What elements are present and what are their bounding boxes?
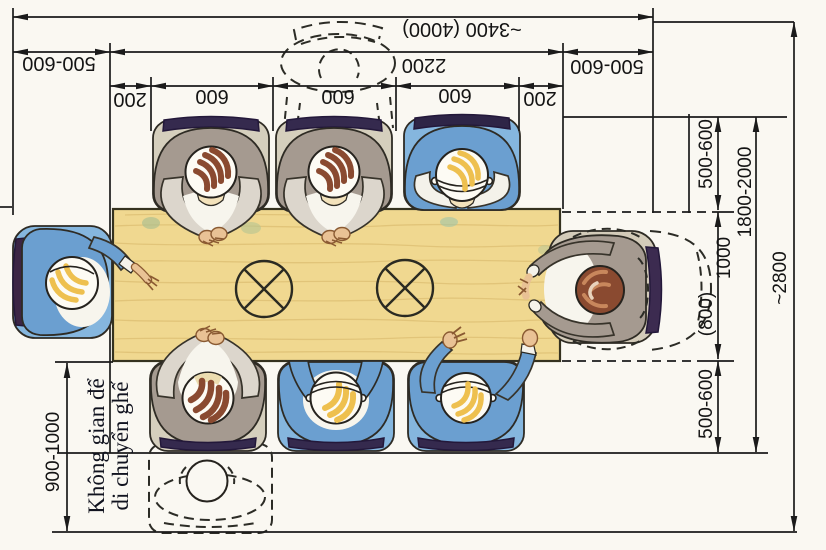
svg-text:2200: 2200 xyxy=(402,54,447,76)
svg-text:1000: 1000 xyxy=(714,237,735,279)
svg-text:500-600: 500-600 xyxy=(570,55,643,77)
svg-text:500-600: 500-600 xyxy=(696,119,717,189)
svg-text:500-600: 500-600 xyxy=(696,369,717,439)
svg-text:600: 600 xyxy=(321,85,354,107)
svg-text:500-600: 500-600 xyxy=(22,52,95,74)
svg-text:200: 200 xyxy=(523,87,556,109)
svg-text:200: 200 xyxy=(113,88,146,110)
svg-text:~2800: ~2800 xyxy=(770,251,791,304)
svg-text:Không gian để: Không gian để xyxy=(84,378,109,514)
svg-text:900-1000: 900-1000 xyxy=(43,412,64,492)
svg-text:~3400 (4000): ~3400 (4000) xyxy=(402,18,522,40)
svg-text:di chuyển ghế: di chuyển ghế xyxy=(108,381,133,511)
svg-text:(800): (800) xyxy=(696,292,717,336)
svg-text:600: 600 xyxy=(438,84,471,106)
svg-text:600: 600 xyxy=(195,85,228,107)
svg-text:1800-2000: 1800-2000 xyxy=(735,147,756,238)
